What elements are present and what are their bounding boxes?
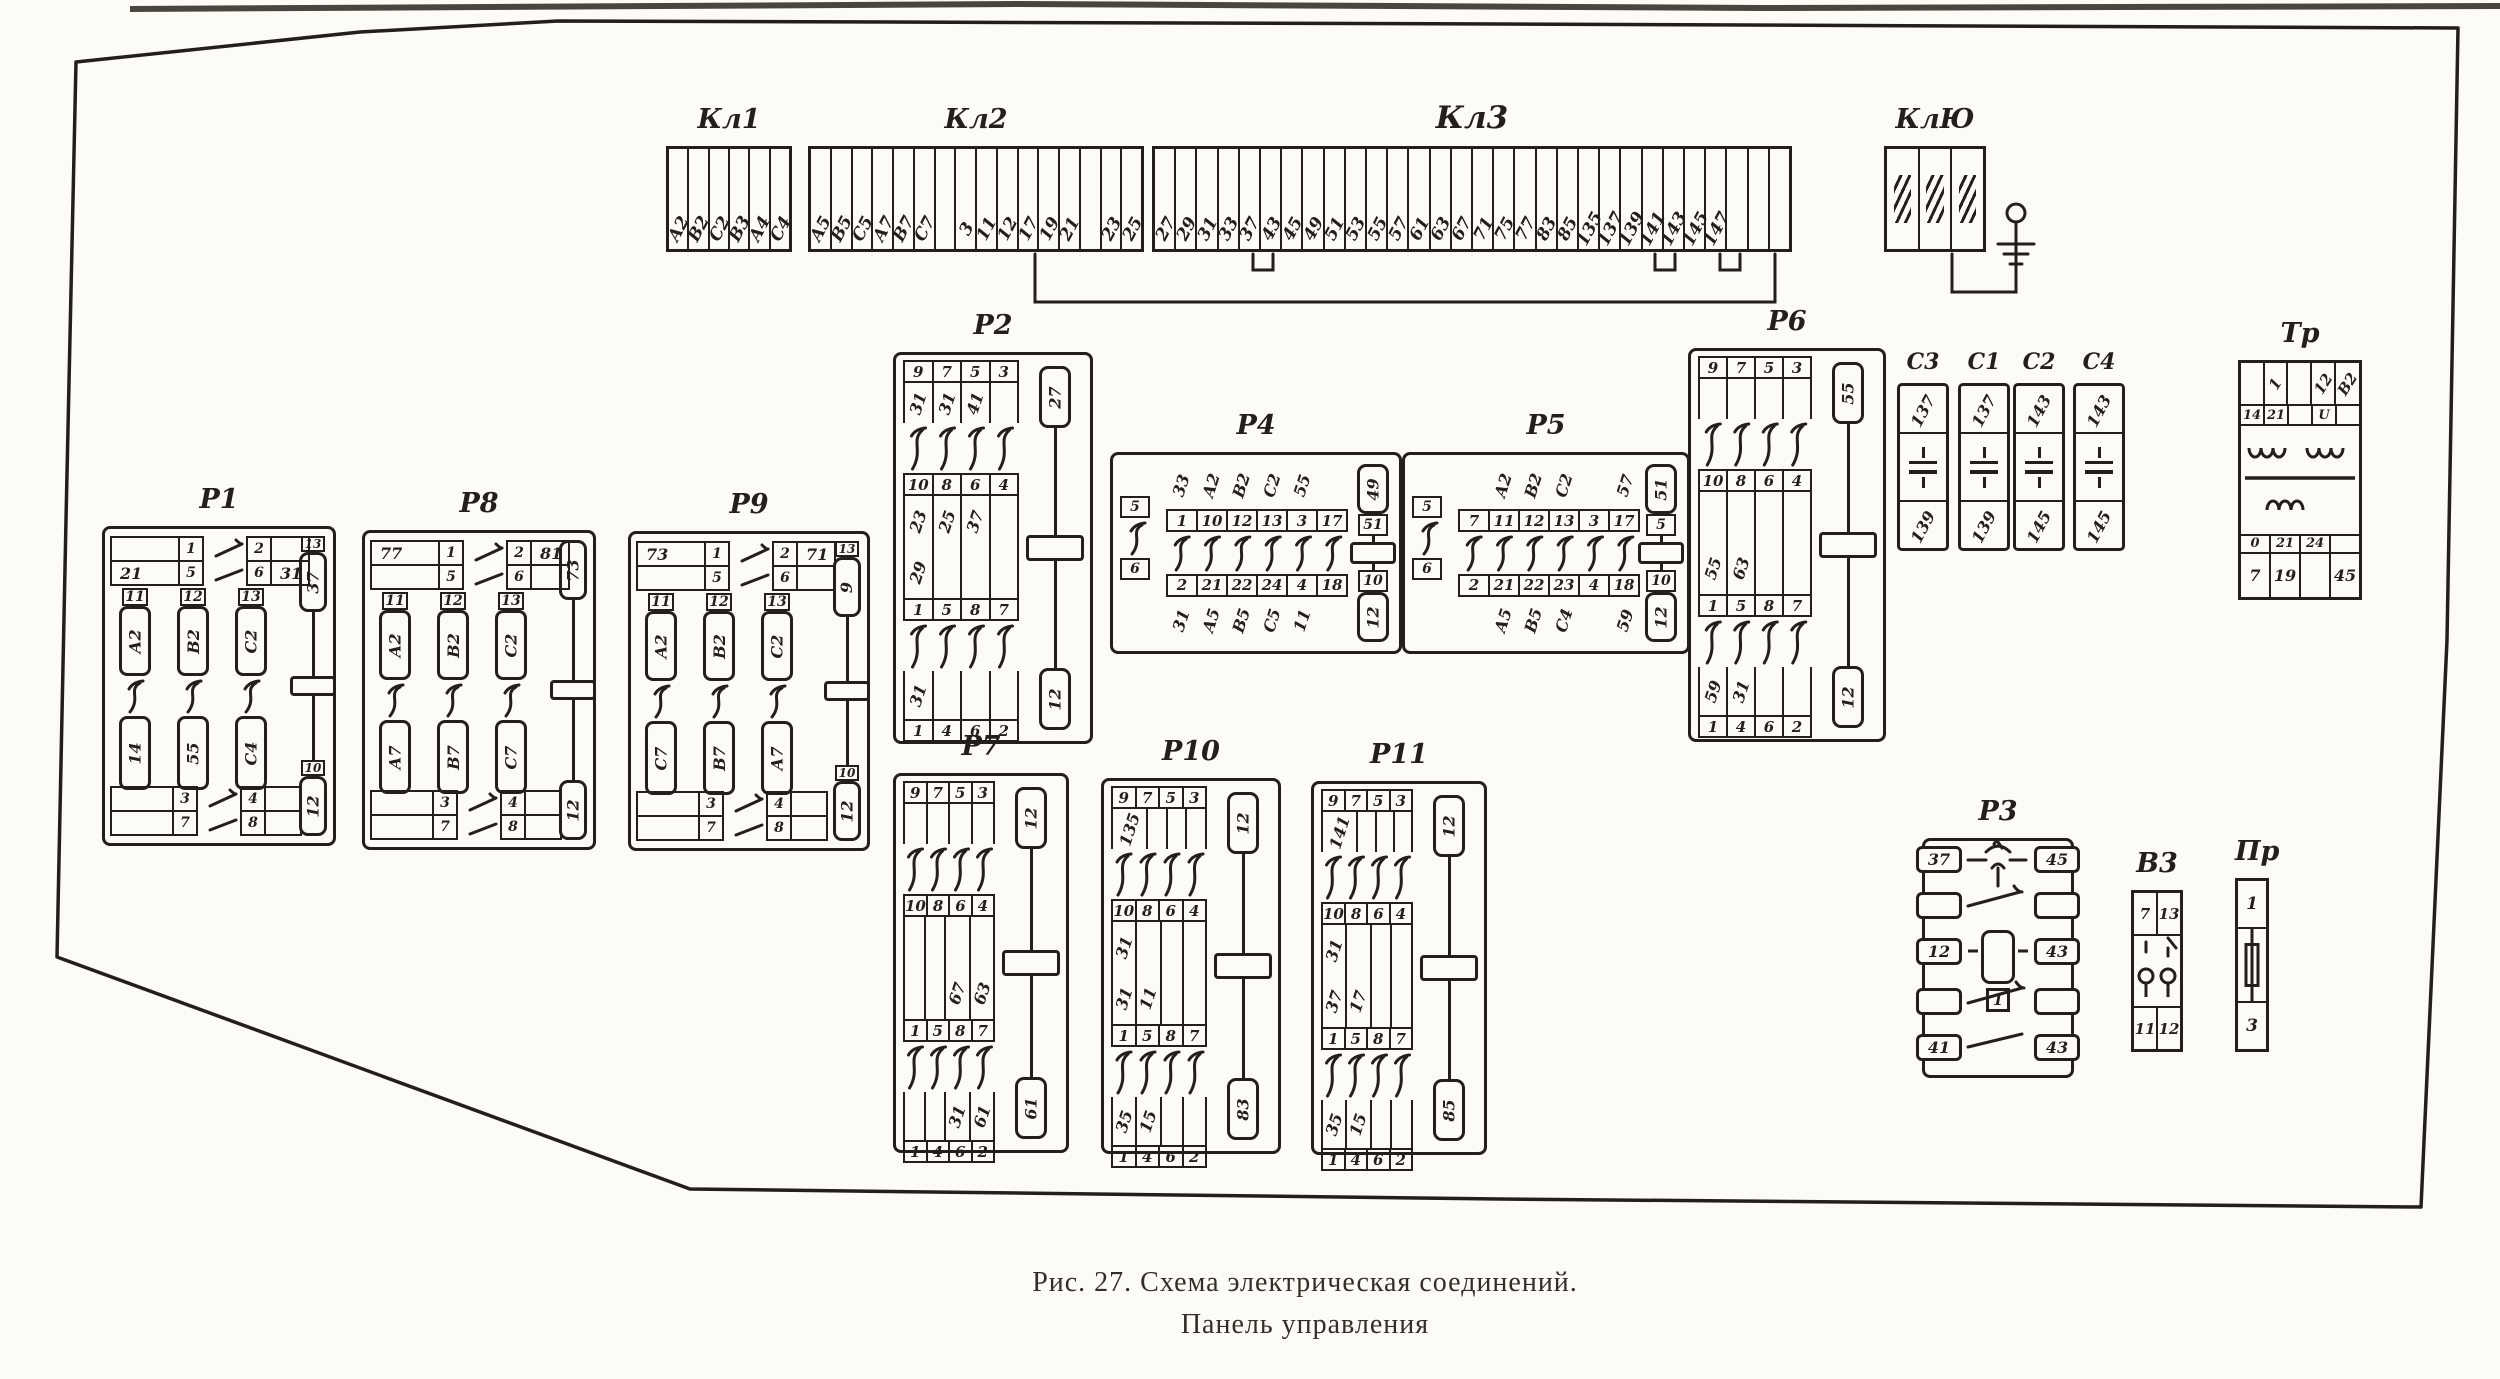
wire-column bbox=[1184, 1097, 1205, 1145]
pin-cell: 7 bbox=[1184, 1026, 1206, 1045]
label-row bbox=[792, 817, 826, 839]
wire-column: С2 bbox=[1549, 462, 1579, 509]
pin-cell: 17 bbox=[1610, 511, 1638, 530]
pin-number: 1 bbox=[1328, 1151, 1338, 1169]
wire-label: 31 bbox=[1112, 985, 1137, 1012]
contact-stack: 975331314110864232925371587311462 bbox=[903, 360, 1019, 742]
coil-column: 49511012 bbox=[1352, 464, 1394, 642]
terminal-number: 0 bbox=[2250, 536, 2259, 551]
pin-cell: 10 bbox=[905, 896, 928, 915]
pin-cell: 10 bbox=[1700, 471, 1728, 490]
coil-icon bbox=[550, 680, 596, 700]
coil-terminal-top: 37 bbox=[299, 552, 327, 612]
pin-number: 3 bbox=[1189, 789, 1199, 807]
wire-label: 29 bbox=[906, 559, 931, 586]
wire-column bbox=[1377, 812, 1395, 852]
contact-terminal-box: 37 bbox=[370, 790, 458, 840]
wire-terminal: С7 bbox=[495, 720, 527, 794]
coil-terminal-top: 73 bbox=[559, 540, 587, 600]
wire-label: 15 bbox=[1346, 1110, 1371, 1137]
pin-cell: 3 bbox=[700, 793, 722, 817]
pin-cell: 10 bbox=[1646, 570, 1676, 592]
pin-cell: 22 bbox=[1520, 576, 1550, 595]
pin-cell: 8 bbox=[1368, 1029, 1391, 1048]
pin-number: 8 bbox=[1736, 472, 1746, 490]
label-box: 21 bbox=[110, 536, 180, 586]
terminal-cell: 25 bbox=[1122, 149, 1141, 249]
pin-cell: 1 bbox=[1700, 596, 1728, 615]
terminal-cell bbox=[1952, 149, 1983, 249]
wire-column bbox=[1784, 379, 1810, 419]
pin-number: 22 bbox=[1232, 576, 1253, 594]
pin-cell: 7 bbox=[1728, 358, 1756, 377]
pin-row: 713 bbox=[2134, 893, 2180, 936]
pin-number: 5 bbox=[1166, 789, 1176, 807]
pin-number: 5 bbox=[942, 601, 952, 619]
pin-cell: 8 bbox=[768, 817, 790, 839]
terminal-block-kl3: Кл32729313337434549515355576163677175778… bbox=[1152, 146, 1792, 252]
pin-cell: 10 bbox=[301, 760, 325, 776]
wire-label: 31 bbox=[1729, 677, 1754, 704]
wire-column bbox=[1579, 462, 1609, 509]
pin-cell: 5 bbox=[1346, 1029, 1369, 1048]
pin-number: 5 bbox=[1764, 359, 1774, 377]
contact-field: 6763 bbox=[903, 917, 995, 1019]
pin-cell: 18 bbox=[1610, 576, 1638, 595]
wire-label: 63 bbox=[969, 980, 994, 1007]
wire-column: 63 bbox=[1728, 492, 1756, 594]
wire-labels-top: 33А2В2С255 bbox=[1166, 462, 1348, 509]
pin-cell: 5 bbox=[1756, 358, 1784, 377]
pin-number: 10 bbox=[905, 897, 926, 915]
terminal-number: 12 bbox=[2310, 370, 2336, 397]
contact-field: 3515 bbox=[1321, 1100, 1413, 1148]
pin-number: 7 bbox=[1396, 1030, 1406, 1048]
capacitor-c2: С2143145 bbox=[2013, 383, 2065, 551]
contact-terminal-box: 2115 bbox=[110, 536, 204, 586]
pin-number: 3 bbox=[1396, 792, 1406, 810]
pin-cells: 26 bbox=[506, 540, 530, 590]
wire-column: 31 bbox=[934, 383, 963, 423]
pin-cell: 23 bbox=[1550, 576, 1580, 595]
pin-number: 13 bbox=[1262, 512, 1283, 530]
coil-icon bbox=[1026, 535, 1084, 561]
pin-cell: 13 bbox=[301, 536, 325, 552]
pin-cell: 5 bbox=[1646, 514, 1676, 536]
schematic-page: Кл1А2В2С2В3А4С4 Кл2А5В5С5А7В7С7311121719… bbox=[0, 0, 2500, 1379]
block-label: Кл2 bbox=[808, 104, 1144, 135]
pin-cell: 3 bbox=[434, 792, 456, 816]
terminal-cell bbox=[1749, 149, 1770, 249]
wire-label: В5 bbox=[1521, 606, 1547, 635]
wire bbox=[1847, 424, 1850, 532]
pin-cell: 10 bbox=[1323, 904, 1346, 923]
block-label: Р7 bbox=[893, 731, 1069, 762]
wire-column bbox=[1358, 812, 1376, 852]
pin-number: 7 bbox=[1142, 789, 1152, 807]
pin-cell: 7 bbox=[1391, 1029, 1412, 1048]
pin-number: 4 bbox=[978, 897, 988, 915]
wire-label: В2 bbox=[1521, 471, 1547, 500]
wire-labels-bottom: 31А5В5С511 bbox=[1166, 597, 1348, 644]
terminal-cell: 137 bbox=[1961, 386, 2007, 434]
transformer-body: 112В21421U0212471945 bbox=[2238, 360, 2362, 600]
terminal-strip: 2729313337434549515355576163677175778385… bbox=[1152, 146, 1792, 252]
pin-row: 9753 bbox=[903, 781, 995, 804]
pin-number: 5 bbox=[970, 363, 980, 381]
wire bbox=[572, 700, 575, 780]
pin-number: 12 bbox=[1232, 512, 1253, 530]
terminal-cell bbox=[1770, 149, 1789, 249]
pin-cell: 3 bbox=[973, 783, 994, 802]
pin-cell: 4 bbox=[242, 788, 264, 812]
pin-number: 10 bbox=[1113, 902, 1134, 920]
pin-cell: 4 bbox=[768, 793, 790, 817]
pin-cell: 51 bbox=[1358, 514, 1388, 536]
contact-stack: 975313510864313111158735151462 bbox=[1111, 786, 1207, 1168]
wire-label: 12 bbox=[1233, 812, 1252, 834]
pin-cell: 11 bbox=[1490, 511, 1520, 530]
pin-cell: 9 bbox=[1113, 788, 1137, 807]
wire-column bbox=[1187, 809, 1205, 849]
capacitor-c1: С1137139 bbox=[1958, 383, 2010, 551]
pin-cell: 7 bbox=[973, 1021, 994, 1040]
wire-label: 55 bbox=[183, 742, 202, 764]
pin-number: 5 bbox=[1736, 597, 1746, 615]
terminal-cell: 14 bbox=[2241, 406, 2265, 426]
pin-cell: 1 bbox=[1113, 1147, 1137, 1166]
wire-label: 55 bbox=[1701, 555, 1726, 582]
wire-label: 17 bbox=[1346, 988, 1371, 1015]
wire-column bbox=[905, 804, 928, 844]
pin-row: 1587 bbox=[1111, 1024, 1207, 1047]
pin-number: 7 bbox=[999, 601, 1009, 619]
terminal-cell: 143 bbox=[2016, 386, 2062, 434]
pin-cell: 21 bbox=[1198, 576, 1228, 595]
pin-number: 18 bbox=[1614, 576, 1635, 594]
coil-terminal-top: 9 bbox=[833, 557, 861, 617]
wire-column bbox=[1784, 492, 1810, 594]
pin-number: 6 bbox=[1166, 902, 1176, 920]
pin-number: 17 bbox=[1322, 512, 1343, 530]
wire-label: 37 bbox=[1322, 988, 1347, 1015]
coil-terminal-bottom: 12 bbox=[1645, 592, 1677, 642]
pin-cell: 6 bbox=[1756, 471, 1784, 490]
coil-terminal-top: 12 bbox=[1015, 787, 1047, 849]
contact-terminal-box: 48 bbox=[766, 791, 828, 841]
wire-column bbox=[1458, 462, 1488, 509]
coil-terminal-bottom: 12 bbox=[833, 781, 861, 841]
terminal-number: 139 bbox=[1907, 508, 1939, 546]
phase-column: 11А2С7 bbox=[644, 593, 678, 795]
pin-cell: 4 bbox=[502, 792, 524, 816]
pin-cell: 1 bbox=[440, 542, 462, 566]
pin-cell: 10 bbox=[835, 765, 859, 781]
wire-label: 12 bbox=[1651, 606, 1670, 628]
pin-cell: 7 bbox=[928, 783, 951, 802]
contact-set-icon bbox=[236, 676, 266, 716]
fuse-icon bbox=[2238, 929, 2266, 1001]
wire-label: 12 bbox=[1439, 815, 1458, 837]
pin-cell: 13 bbox=[1258, 511, 1288, 530]
wire-label: 31 bbox=[1112, 934, 1137, 961]
pin-cell: 1 bbox=[1168, 511, 1198, 530]
contact-icon bbox=[734, 793, 764, 841]
switch-v3: В37131112 bbox=[2131, 890, 2183, 1052]
contact-set-icon bbox=[1111, 1047, 1207, 1097]
pin-number: 8 bbox=[1351, 905, 1361, 923]
wire-column: 59 bbox=[1700, 667, 1728, 715]
wire-label: В2 bbox=[184, 629, 203, 654]
pin-cell: 2 bbox=[1184, 1147, 1206, 1166]
wire-label: А7 bbox=[385, 745, 404, 769]
terminal-number: 145 bbox=[2023, 508, 2055, 546]
pin-cell: 8 bbox=[1160, 1026, 1184, 1045]
pin-cell: 6 bbox=[950, 1142, 973, 1161]
wire-terminal: С7 bbox=[645, 721, 677, 795]
wire-label: А2 bbox=[1199, 471, 1225, 500]
pin-number: 4 bbox=[1396, 905, 1406, 923]
terminal-cell bbox=[1920, 149, 1953, 249]
pin-number: 1 bbox=[1119, 1027, 1129, 1045]
pin-cell: 2 bbox=[1784, 717, 1810, 736]
wire-column: 57 bbox=[1610, 462, 1640, 509]
block-label: Кл1 bbox=[666, 104, 792, 135]
contact-set-icon bbox=[178, 676, 208, 716]
shield-mark-icon bbox=[1894, 175, 1911, 223]
pin-cells: 26 bbox=[246, 536, 270, 586]
pin-cell: 2 bbox=[1168, 576, 1198, 595]
pin-cell: 5 bbox=[1160, 788, 1184, 807]
pin-cell: 6 bbox=[248, 562, 270, 584]
coil-terminal-bottom: 83 bbox=[1227, 1078, 1259, 1140]
terminal-subrow: 02124 bbox=[2241, 534, 2359, 554]
pin-cell: 8 bbox=[502, 816, 524, 838]
wire-label: 12 bbox=[1363, 606, 1382, 628]
wire-column: В5 bbox=[1519, 597, 1549, 644]
pushbutton-icon bbox=[2134, 936, 2180, 1002]
pin-cells: 15 bbox=[180, 536, 204, 586]
pin-cell: 6 bbox=[1412, 558, 1442, 580]
pin-number: 7 bbox=[978, 1022, 988, 1040]
relay-block-r2: Р29753313141108642329253715873114622712 bbox=[893, 352, 1093, 744]
wire-label: 31 bbox=[906, 681, 931, 708]
wire-column: 55 bbox=[1700, 492, 1728, 594]
contact-set-icon bbox=[704, 681, 734, 721]
wire-terminal: А7 bbox=[761, 721, 793, 795]
label-row bbox=[112, 538, 178, 562]
wire-label: 9 bbox=[837, 581, 856, 592]
pin-cell: 10 bbox=[1113, 901, 1137, 920]
pin-cells: 48 bbox=[766, 791, 790, 841]
wire-label: 31 bbox=[1322, 937, 1347, 964]
wire-label: В2 bbox=[444, 633, 463, 658]
wire-column: 31 bbox=[905, 383, 934, 423]
left-contact: 56 bbox=[1412, 496, 1452, 580]
label-row: 73 bbox=[638, 543, 704, 567]
pin-cell: 7 bbox=[1137, 788, 1161, 807]
pin-number: 8 bbox=[1166, 1027, 1176, 1045]
pin-number: 4 bbox=[1792, 472, 1802, 490]
label-box bbox=[790, 791, 828, 841]
contact-field: 3161 bbox=[903, 1092, 995, 1140]
pin-cell: 10 bbox=[1198, 511, 1228, 530]
relay-block-r9: Р97315267111А2С712В2В713С2А737481391012 bbox=[628, 531, 870, 851]
wire-column: 35 bbox=[1323, 1100, 1347, 1148]
pin-number: 2 bbox=[1189, 1148, 1199, 1166]
contact-set-icon bbox=[496, 680, 526, 720]
contact-terminal-box: 2671 bbox=[772, 541, 836, 591]
wire-column: 141 bbox=[1323, 812, 1358, 852]
pin-number: 2 bbox=[1792, 718, 1802, 736]
wire-label: 14 bbox=[125, 742, 144, 764]
pin-cell: 8 bbox=[242, 812, 264, 834]
pin-cell: 6 bbox=[962, 475, 991, 494]
terminal-cell bbox=[2331, 536, 2359, 554]
pin-cell: 4 bbox=[1580, 576, 1610, 595]
pin-cell: 6 bbox=[1160, 1147, 1184, 1166]
pin-cell: 2 bbox=[774, 543, 796, 567]
wire-label: 57 bbox=[1612, 472, 1637, 499]
wire bbox=[572, 600, 575, 680]
terminal-number: С4 bbox=[766, 213, 796, 245]
wire-label: 35 bbox=[1322, 1110, 1347, 1137]
terminal-cell: 145 bbox=[2076, 500, 2122, 548]
wire-label: 49 bbox=[1363, 478, 1382, 500]
pin-number: 9 bbox=[913, 363, 923, 381]
wire-label: С4 bbox=[242, 741, 261, 765]
phase-column: 11А2А7 bbox=[378, 592, 412, 794]
pin-cell: 13 bbox=[2158, 893, 2180, 934]
pin-cell: 9 bbox=[905, 362, 934, 381]
relay-block-r1: Р12115263111А21412В25513С2С4374813371012 bbox=[102, 526, 336, 846]
contact-set-icon bbox=[438, 680, 468, 720]
wire-column: 11 bbox=[1137, 922, 1161, 1024]
wire-column: С5 bbox=[1257, 597, 1287, 644]
pin-cell: 2 bbox=[508, 542, 530, 566]
contact-field: 31 bbox=[903, 671, 1019, 719]
pin-cell: 3 bbox=[1184, 788, 1206, 807]
label-row: 21 bbox=[112, 562, 178, 584]
wire-label: 55 bbox=[1838, 382, 1857, 404]
contact-field bbox=[1698, 379, 1812, 419]
pin-number: 5 bbox=[1142, 1027, 1152, 1045]
pin-cell: 3 bbox=[2238, 1001, 2266, 1049]
pin-number: 5 bbox=[1373, 792, 1383, 810]
pin-cell: 5 bbox=[950, 783, 973, 802]
pin-row: 9753 bbox=[1321, 789, 1413, 812]
pin-cell: 4 bbox=[1184, 901, 1206, 920]
pin-cell: 9 bbox=[905, 783, 928, 802]
pin-cell: 1 bbox=[1323, 1150, 1346, 1169]
pin-row: 1587 bbox=[903, 598, 1019, 621]
pin-number: 4 bbox=[1142, 1148, 1152, 1166]
pin-cell: 6 bbox=[1120, 558, 1150, 580]
pin-row: 1462 bbox=[903, 1140, 995, 1163]
pin-number: 17 bbox=[1614, 512, 1635, 530]
terminal-number: 137 bbox=[1968, 392, 2000, 430]
pin-row: 10864 bbox=[1698, 469, 1812, 492]
wire-label: 31 bbox=[906, 389, 931, 416]
pin-number: 10 bbox=[1323, 905, 1344, 923]
pin-row: 2212223418 bbox=[1458, 574, 1640, 597]
wire bbox=[1242, 854, 1245, 953]
wire-terminal: В2 bbox=[177, 606, 209, 676]
pin-number: 4 bbox=[1189, 902, 1199, 920]
pin-cell: 4 bbox=[973, 896, 993, 915]
wire-column bbox=[991, 496, 1018, 598]
pin-cell: 3 bbox=[991, 362, 1018, 381]
wire-column bbox=[1372, 925, 1393, 1027]
wire-column bbox=[1392, 925, 1411, 1027]
pin-cell: 2 bbox=[973, 1142, 994, 1161]
phase-column: 11А214 bbox=[118, 588, 152, 790]
wire bbox=[1054, 428, 1057, 535]
label-row bbox=[638, 793, 698, 817]
pin-cell: 6 bbox=[774, 567, 796, 589]
pin-cells: 15 bbox=[706, 541, 730, 591]
coil-terminal-bottom: 12 bbox=[559, 780, 587, 840]
wire-column: 25 bbox=[934, 496, 963, 598]
capacitor-c4: С4143145 bbox=[2073, 383, 2125, 551]
coil-terminal-bottom: 12 bbox=[1039, 668, 1071, 730]
pin-number: 4 bbox=[1736, 718, 1746, 736]
wire-column bbox=[1168, 809, 1188, 849]
pin-number: 1 bbox=[910, 1022, 920, 1040]
pin-row: 1101213317 bbox=[1166, 509, 1348, 532]
capacitor-icon bbox=[1961, 434, 2007, 500]
pin-cell: 7 bbox=[174, 812, 196, 834]
contact-set-icon bbox=[903, 1042, 995, 1092]
wire bbox=[1448, 981, 1451, 1079]
terminal-cell: 7 bbox=[2241, 554, 2271, 597]
pin-cell: 6 bbox=[1368, 904, 1390, 923]
wire-column: А5 bbox=[1196, 597, 1226, 644]
terminal-cell bbox=[936, 149, 957, 249]
wire bbox=[1054, 561, 1057, 668]
pin-number: 10 bbox=[1202, 512, 1223, 530]
pin-cells: 15 bbox=[440, 540, 464, 590]
wire-label: 61 bbox=[1021, 1097, 1040, 1119]
wire-column: А2 bbox=[1488, 462, 1518, 509]
wire-column bbox=[1756, 379, 1784, 419]
coil-terminal-bottom: 12 bbox=[1357, 592, 1389, 642]
block-label: Р8 bbox=[362, 488, 596, 519]
wire-column bbox=[1184, 922, 1205, 1024]
pin-row: 10864 bbox=[1111, 899, 1207, 922]
pin-number: 2 bbox=[1396, 1151, 1406, 1169]
pin-cell: 7 bbox=[991, 600, 1018, 619]
wire-label: В5 bbox=[1229, 606, 1255, 635]
terminal-number: 137 bbox=[1907, 392, 1939, 430]
wire-column bbox=[1395, 812, 1411, 852]
wire-label: А2 bbox=[1491, 471, 1517, 500]
wire-label: С2 bbox=[1551, 471, 1576, 500]
block-label: В3 bbox=[2131, 848, 2183, 879]
pin-row: 1587 bbox=[903, 1019, 995, 1042]
coil-column: 1261 bbox=[1001, 787, 1061, 1139]
pin-cell: 1 bbox=[706, 543, 728, 567]
terminal-number: 24 bbox=[2306, 536, 2324, 551]
wire-column: А2 bbox=[1196, 462, 1226, 509]
terminal-cell: 137 bbox=[1900, 386, 1946, 434]
contact-set-icon bbox=[1698, 617, 1812, 667]
wire-column: С2 bbox=[1257, 462, 1287, 509]
terminal-cell: С7 bbox=[915, 149, 936, 249]
pin-cell: 8 bbox=[950, 1021, 973, 1040]
capacitor-body: 137139 bbox=[1897, 383, 1949, 551]
coil-column: 2712 bbox=[1025, 366, 1085, 730]
